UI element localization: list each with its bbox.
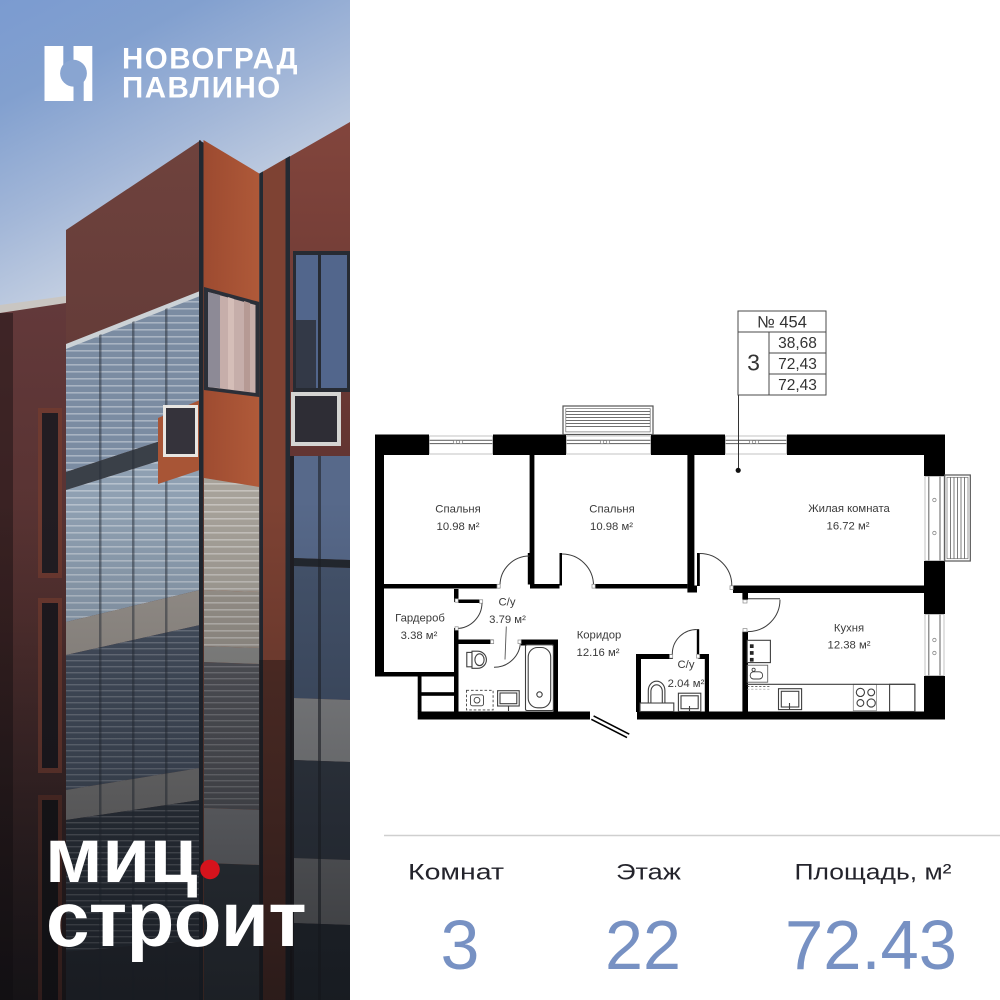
svg-text:С/у: С/у [678, 659, 695, 671]
svg-text:Гардероб: Гардероб [395, 613, 445, 625]
svg-text:Комнат: Комнат [408, 860, 504, 885]
svg-text:38,68: 38,68 [778, 335, 817, 352]
svg-text:12.16 м²: 12.16 м² [577, 647, 620, 659]
svg-text:72,43: 72,43 [778, 377, 817, 394]
svg-text:строит: строит [46, 875, 306, 963]
svg-text:Спальня: Спальня [589, 504, 634, 516]
svg-text:С/у: С/у [499, 597, 516, 609]
svg-text:3: 3 [441, 906, 480, 984]
svg-text:10.98 м²: 10.98 м² [437, 521, 480, 533]
svg-text:Коридор: Коридор [577, 630, 622, 642]
svg-text:Этаж: Этаж [616, 860, 681, 885]
svg-text:3: 3 [747, 350, 760, 376]
svg-text:72.43: 72.43 [785, 906, 957, 984]
svg-text:2.04 м²: 2.04 м² [668, 678, 705, 690]
svg-text:72,43: 72,43 [778, 356, 817, 373]
svg-text:12.38 м²: 12.38 м² [828, 640, 871, 652]
svg-text:ПАВЛИНО: ПАВЛИНО [122, 72, 282, 105]
svg-text:Площадь, м²: Площадь, м² [795, 860, 953, 885]
svg-text:3.79 м²: 3.79 м² [489, 614, 526, 626]
svg-text:10.98 м²: 10.98 м² [590, 521, 633, 533]
svg-text:Жилая комната: Жилая комната [808, 503, 890, 515]
svg-text:3.38 м²: 3.38 м² [401, 630, 438, 642]
svg-text:16.72 м²: 16.72 м² [827, 521, 870, 533]
svg-text:Спальня: Спальня [435, 504, 480, 516]
svg-text:Кухня: Кухня [834, 623, 864, 635]
svg-text:№ 454: № 454 [757, 314, 807, 332]
svg-text:22: 22 [605, 906, 681, 984]
